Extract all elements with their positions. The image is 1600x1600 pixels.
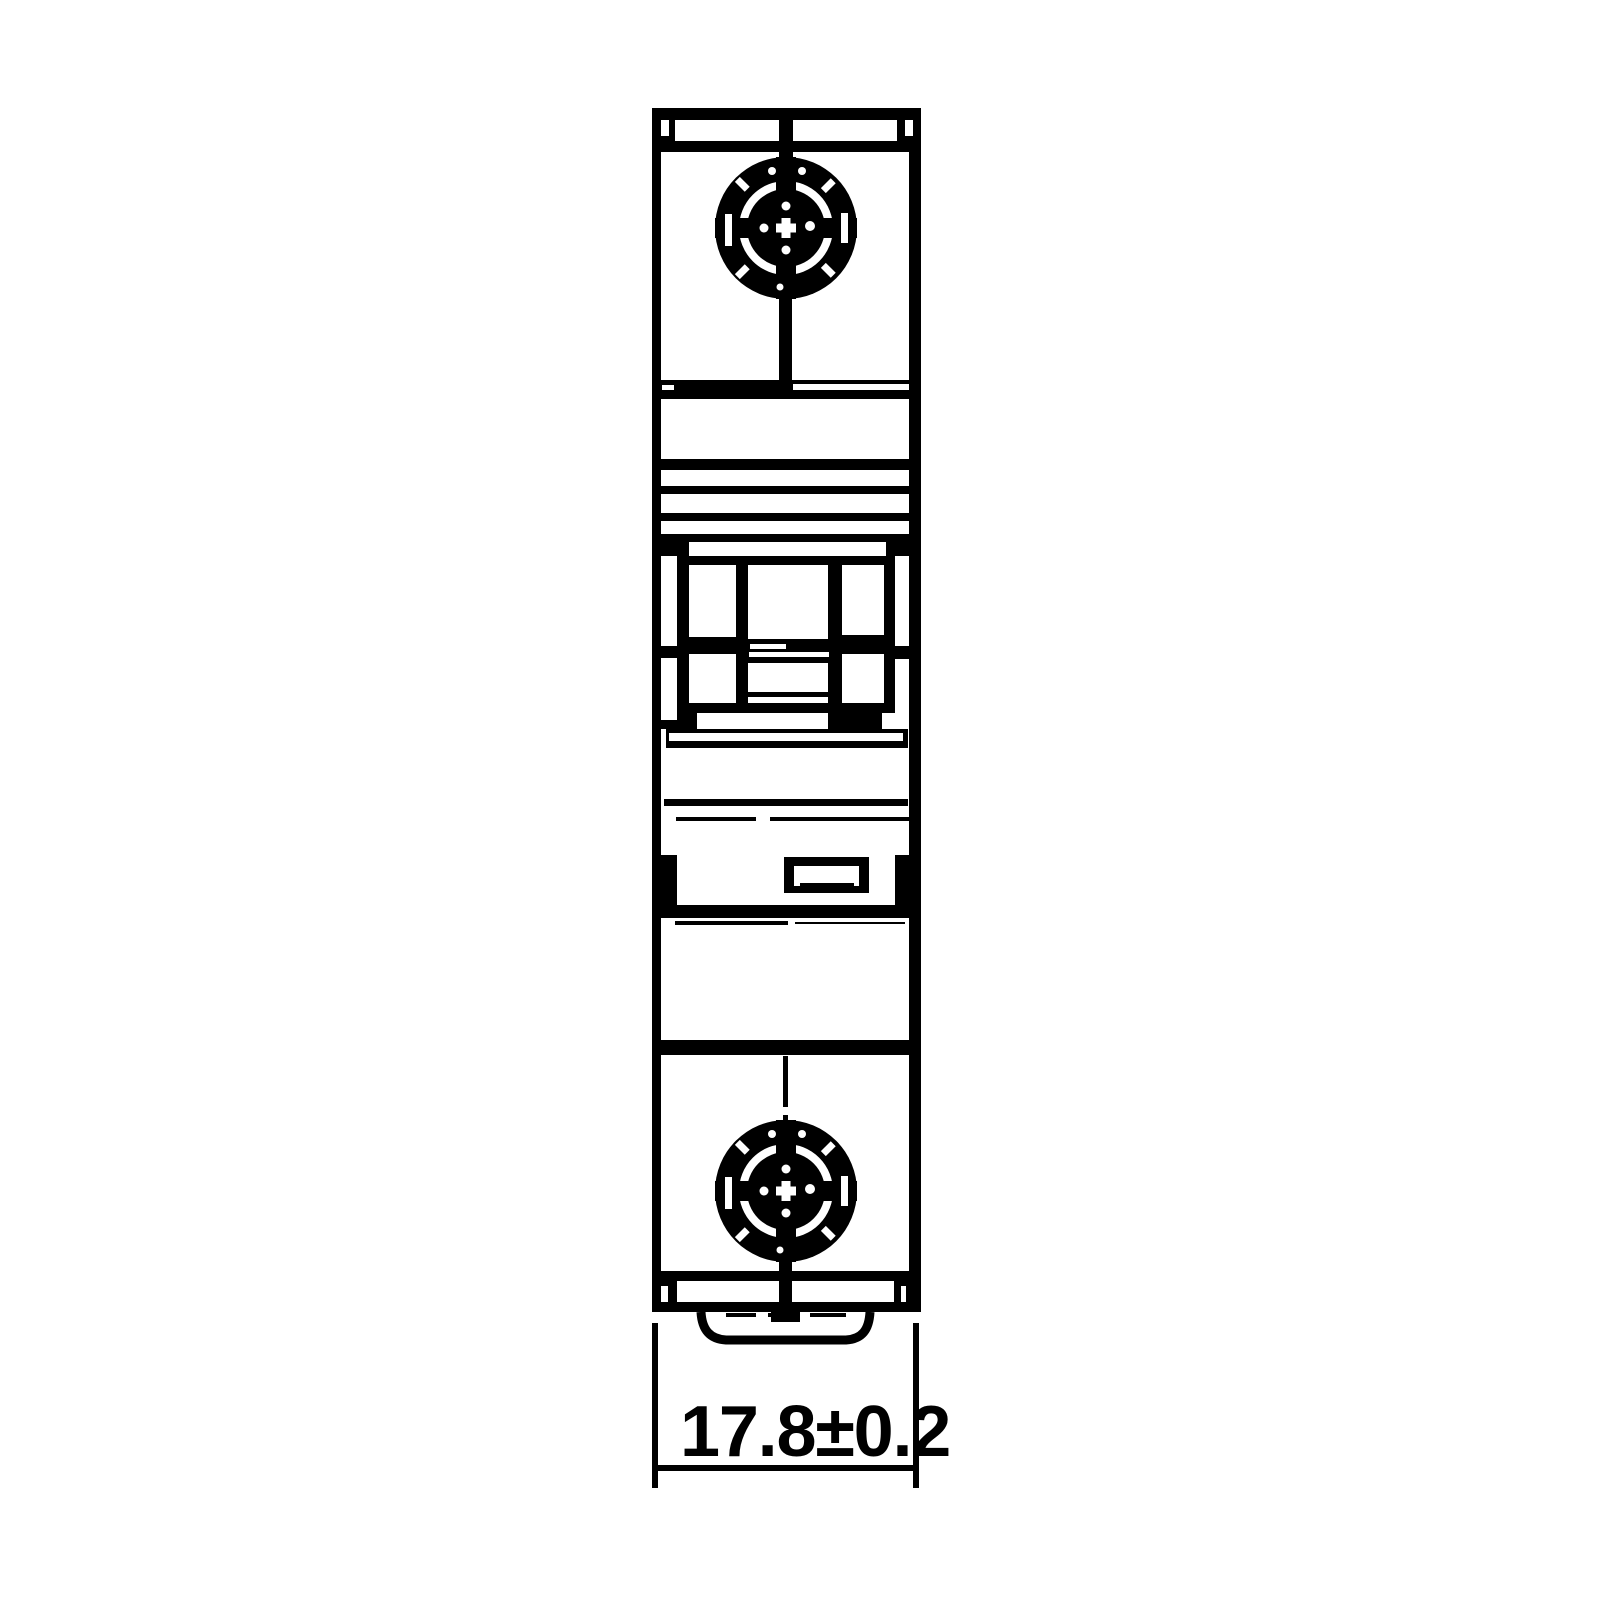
svg-text:17.8±0.2: 17.8±0.2 [680,1392,950,1472]
